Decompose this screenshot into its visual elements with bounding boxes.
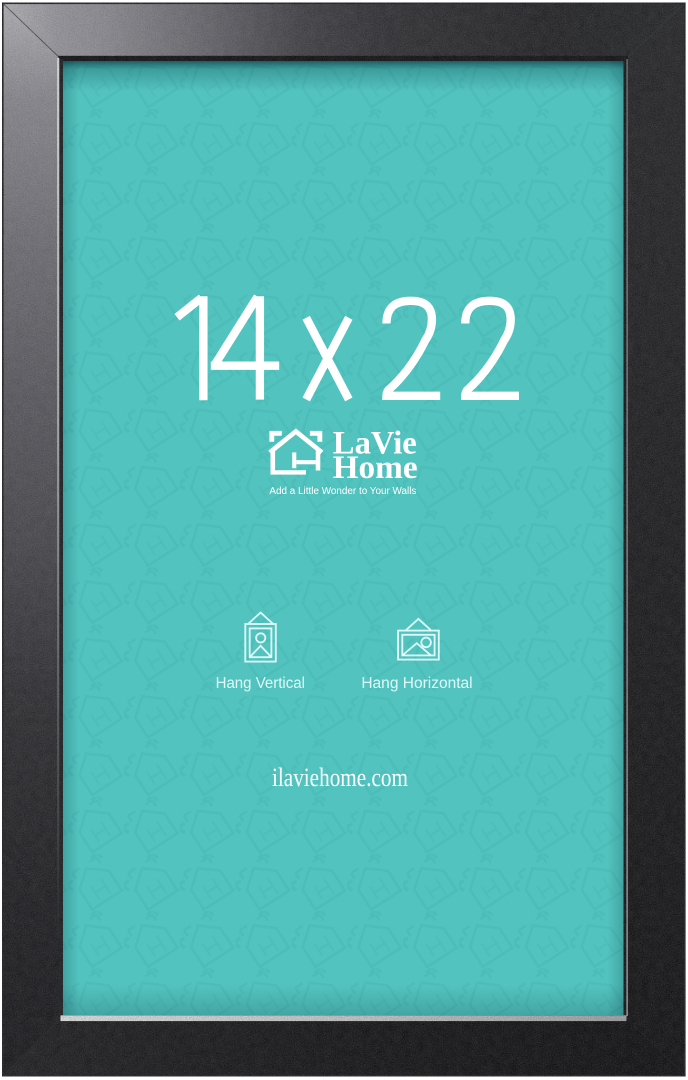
svg-text:ilaviehome.com: ilaviehome.com	[272, 763, 408, 792]
svg-text:Add a Little Wonder to Your Wa: Add a Little Wonder to Your Walls	[269, 486, 416, 497]
svg-text:Hang Horizontal: Hang Horizontal	[361, 675, 472, 692]
svg-text:Home: Home	[333, 450, 418, 486]
svg-text:Hang Vertical: Hang Vertical	[216, 675, 305, 692]
